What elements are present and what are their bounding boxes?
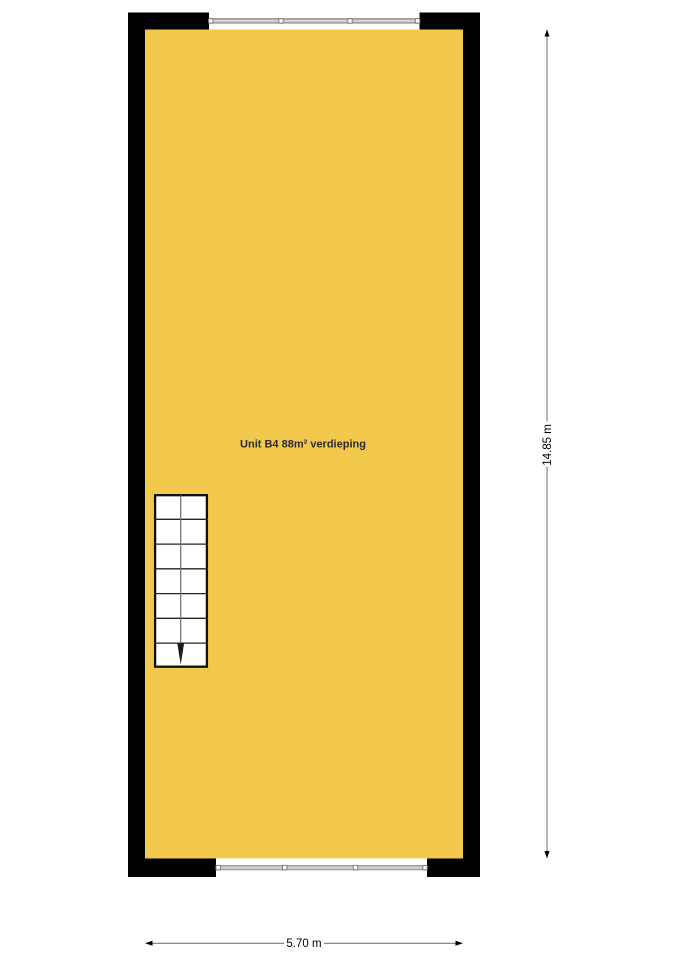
svg-text:5.70 m: 5.70 m [286, 938, 321, 950]
svg-text:14.85 m: 14.85 m [542, 424, 554, 466]
svg-text:Unit B4 88m² verdieping: Unit B4 88m² verdieping [240, 438, 366, 450]
